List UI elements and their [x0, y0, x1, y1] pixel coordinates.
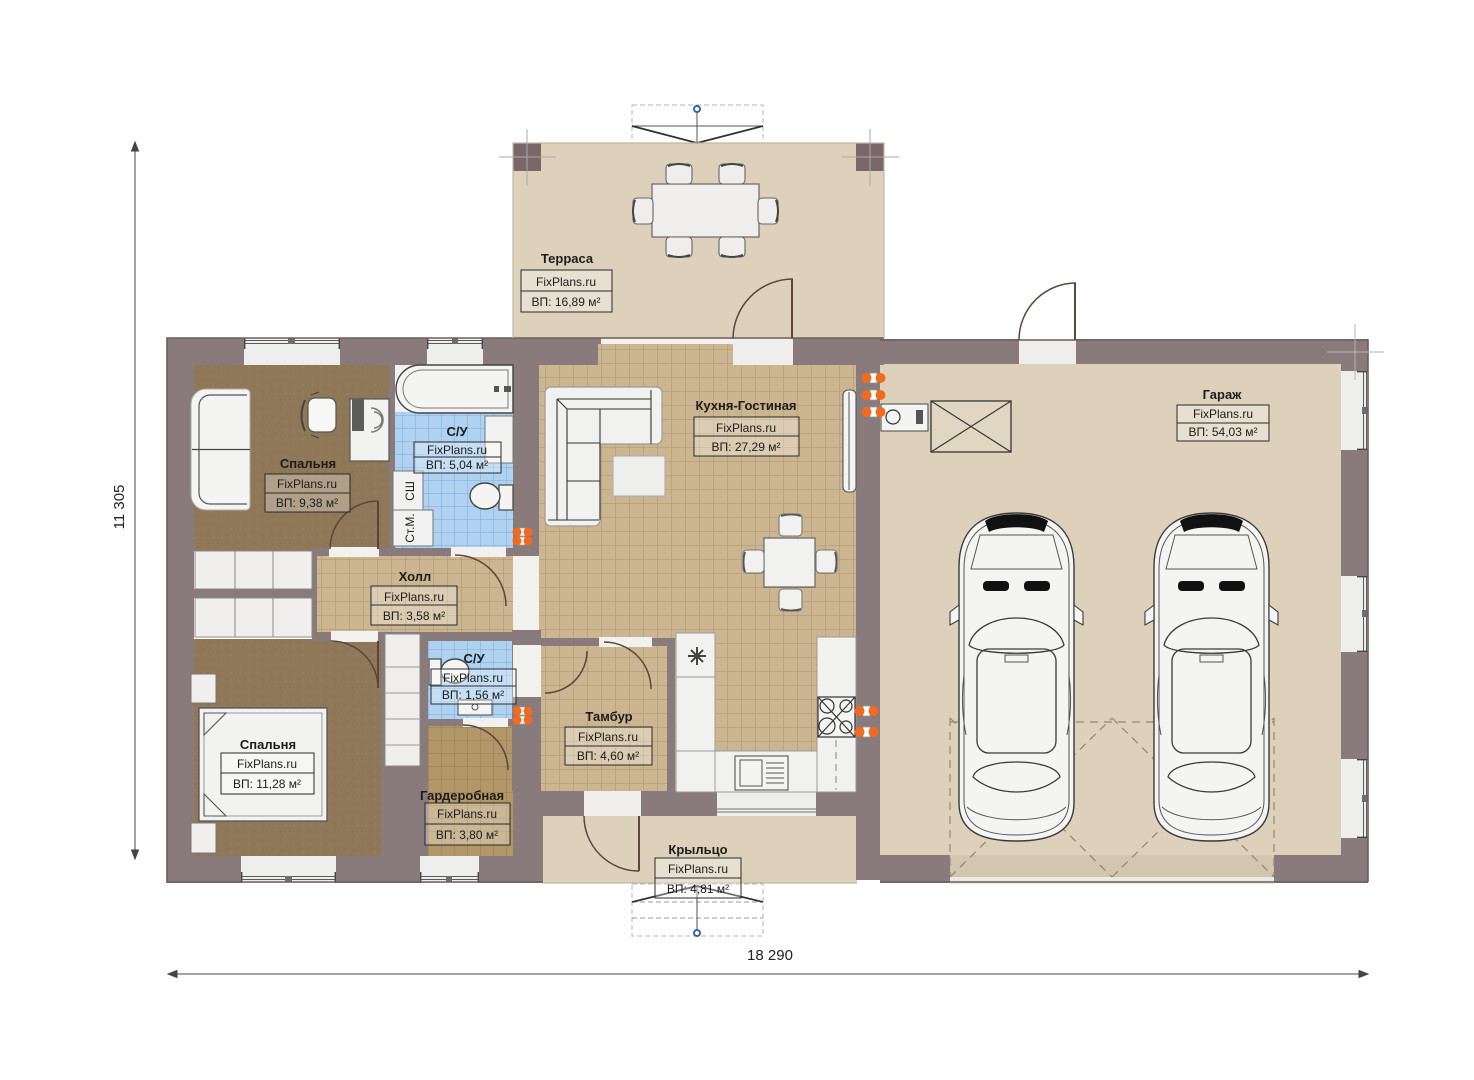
svg-text:Спальня: Спальня [240, 737, 296, 752]
svg-text:FixPlans.ru: FixPlans.ru [277, 477, 337, 491]
svg-text:ВП: 3,80 м²: ВП: 3,80 м² [436, 828, 498, 842]
svg-text:Ст.М.: Ст.М. [403, 513, 417, 543]
svg-text:ВП: 9,38 м²: ВП: 9,38 м² [276, 496, 338, 510]
svg-text:FixPlans.ru: FixPlans.ru [716, 421, 776, 435]
svg-text:Кухня-Гостиная: Кухня-Гостиная [695, 398, 796, 413]
svg-text:FixPlans.ru: FixPlans.ru [443, 671, 503, 685]
svg-text:Холл: Холл [399, 569, 432, 584]
svg-text:11 305: 11 305 [111, 485, 128, 530]
svg-text:СШ: СШ [403, 481, 417, 501]
svg-text:Спальня: Спальня [280, 456, 336, 471]
svg-text:FixPlans.ru: FixPlans.ru [536, 275, 596, 289]
svg-text:С/У: С/У [446, 424, 468, 439]
svg-text:ВП: 11,28 м²: ВП: 11,28 м² [233, 777, 301, 791]
svg-text:FixPlans.ru: FixPlans.ru [668, 862, 728, 876]
svg-text:FixPlans.ru: FixPlans.ru [237, 757, 297, 771]
svg-text:Терраса: Терраса [541, 251, 594, 266]
svg-text:С/У: С/У [463, 651, 485, 666]
svg-text:ВП: 5,04 м²: ВП: 5,04 м² [426, 458, 488, 472]
svg-text:ВП: 3,58 м²: ВП: 3,58 м² [383, 609, 445, 623]
svg-text:FixPlans.ru: FixPlans.ru [1193, 407, 1253, 421]
svg-text:FixPlans.ru: FixPlans.ru [437, 807, 497, 821]
svg-text:ВП: 4,81 м²: ВП: 4,81 м² [667, 882, 729, 896]
svg-text:ВП: 27,29 м²: ВП: 27,29 м² [712, 440, 781, 454]
svg-text:Тамбур: Тамбур [585, 709, 632, 724]
svg-text:Крыльцо: Крыльцо [668, 842, 727, 857]
svg-text:FixPlans.ru: FixPlans.ru [578, 730, 638, 744]
svg-text:FixPlans.ru: FixPlans.ru [384, 590, 444, 604]
svg-text:18 290: 18 290 [747, 947, 793, 964]
svg-text:ВП: 16,89 м²: ВП: 16,89 м² [532, 295, 601, 309]
svg-text:ВП: 54,03 м²: ВП: 54,03 м² [1189, 425, 1258, 439]
svg-text:ВП: 1,56 м²: ВП: 1,56 м² [442, 688, 504, 702]
svg-text:Гараж: Гараж [1203, 387, 1243, 402]
svg-text:ВП: 4,60 м²: ВП: 4,60 м² [577, 749, 639, 763]
svg-text:FixPlans.ru: FixPlans.ru [427, 443, 487, 457]
svg-text:Гардеробная: Гардеробная [420, 788, 504, 803]
